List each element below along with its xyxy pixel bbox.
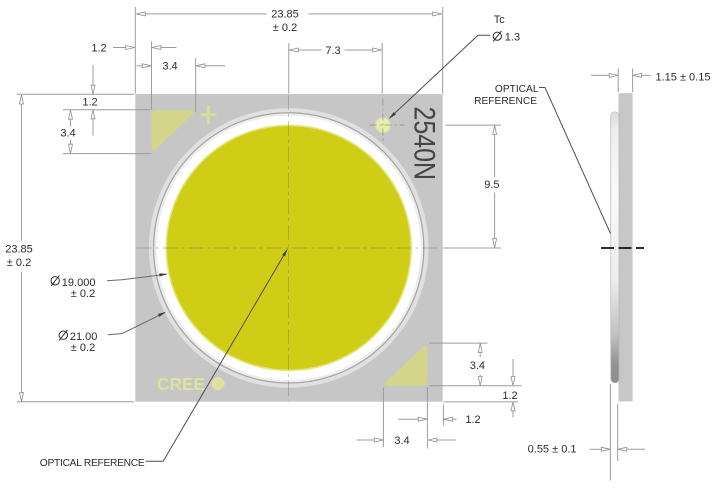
svg-text:2540N: 2540N [408, 107, 441, 181]
svg-text:1.2: 1.2 [91, 42, 106, 54]
svg-text:± 0.2: ± 0.2 [71, 342, 95, 354]
svg-text:1.15 ± 0.15: 1.15 ± 0.15 [656, 71, 711, 83]
svg-text:0.55 ± 0.1: 0.55 ± 0.1 [528, 444, 577, 456]
svg-text:3.4: 3.4 [394, 435, 409, 447]
svg-text:± 0.2: ± 0.2 [7, 257, 31, 269]
svg-text:OPTICAL REFERENCE: OPTICAL REFERENCE [40, 458, 145, 469]
svg-text:23.85: 23.85 [271, 9, 299, 21]
svg-text:3.4: 3.4 [60, 128, 75, 140]
svg-text:CREE: CREE [157, 374, 205, 394]
svg-text:1.3: 1.3 [505, 32, 520, 44]
svg-text:Tc: Tc [494, 14, 506, 26]
svg-text:± 0.2: ± 0.2 [71, 288, 95, 300]
svg-text:REFERENCE: REFERENCE [474, 96, 537, 107]
svg-text:7.3: 7.3 [325, 45, 340, 57]
svg-text:3.4: 3.4 [470, 360, 485, 372]
svg-text:1.2: 1.2 [465, 414, 480, 426]
svg-text:1.2: 1.2 [82, 96, 97, 108]
svg-text:± 0.2: ± 0.2 [273, 22, 297, 34]
svg-text:OPTICAL: OPTICAL [495, 84, 539, 95]
svg-text:9.5: 9.5 [484, 179, 499, 191]
svg-text:23.85: 23.85 [5, 243, 33, 255]
svg-text:3.4: 3.4 [162, 61, 177, 73]
svg-text:1.2: 1.2 [502, 390, 517, 402]
